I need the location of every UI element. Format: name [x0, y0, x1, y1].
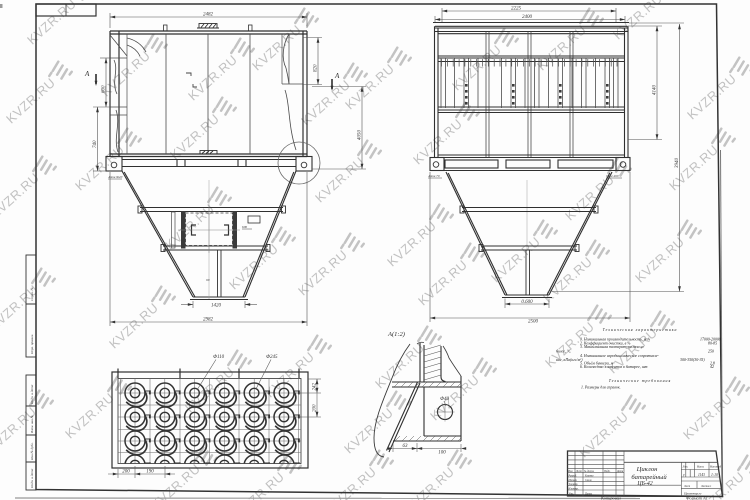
svg-text:ЦБ-42: ЦБ-42 — [636, 480, 652, 487]
svg-text:Ст2.490: Ст2.490 — [606, 174, 619, 178]
svg-text:4140: 4140 — [653, 85, 658, 96]
svg-text:Взам. инв.№: Взам. инв.№ — [30, 414, 34, 433]
svg-text:Изм: Изм — [567, 470, 573, 473]
svg-text:Ф110: Ф110 — [213, 355, 225, 360]
svg-text:200: 200 — [122, 470, 130, 475]
svg-text:Разраб.: Разраб. — [568, 474, 578, 477]
svg-text:Дата: Дата — [616, 470, 624, 473]
svg-text:A: A — [334, 72, 340, 80]
svg-text:Утв.: Утв. — [569, 493, 575, 496]
svg-text:Техническая характеристика: Техническая характеристика — [603, 328, 678, 332]
svg-text:4050: 4050 — [358, 130, 363, 141]
svg-text:2400: 2400 — [522, 15, 533, 20]
svg-text:A: A — [84, 70, 90, 78]
svg-text:Подп. и дата: Подп. и дата — [30, 468, 34, 489]
svg-text:Листов 1: Листов 1 — [700, 485, 712, 488]
svg-text:4отв Ф20: 4отв Ф20 — [108, 175, 123, 179]
svg-text:250: 250 — [708, 350, 714, 354]
svg-text:Провер.: Провер. — [568, 479, 578, 482]
svg-text:2482: 2482 — [203, 13, 214, 18]
svg-text:3940: 3940 — [675, 158, 680, 169]
svg-text:Перв. примен.: Перв. примен. — [30, 334, 34, 355]
svg-text:2225: 2225 — [511, 7, 522, 12]
svg-text:Ф40: Ф40 — [440, 397, 450, 402]
svg-text:820: 820 — [314, 64, 319, 72]
svg-text:Технические требования: Технические требования — [609, 379, 672, 383]
svg-text:А(1:2): А(1:2) — [387, 331, 405, 338]
svg-text:Ф245: Ф245 — [266, 355, 278, 360]
svg-text:Лист: Лист — [683, 485, 690, 488]
svg-text:4отв 70: 4отв 70 — [428, 174, 440, 178]
svg-text:200: 200 — [313, 404, 318, 412]
svg-text:740: 740 — [93, 140, 98, 148]
svg-text:100: 100 — [438, 451, 446, 456]
svg-text:Масса: Масса — [696, 466, 705, 469]
svg-text:1. Размеры для справок.: 1. Размеры для справок. — [581, 386, 621, 390]
svg-text:Формат А1: Формат А1 — [686, 496, 708, 500]
svg-text:1:10: 1:10 — [711, 473, 718, 477]
svg-text:Лит.: Лит. — [682, 466, 689, 469]
svg-text:Масштаб: Масштаб — [709, 466, 722, 469]
svg-text:42: 42 — [710, 365, 714, 369]
svg-text:80-85: 80-85 — [708, 342, 717, 346]
svg-text:батарейный: батарейный — [631, 474, 667, 481]
svg-text:Квитко: Квитко — [584, 474, 594, 477]
svg-text:90: 90 — [206, 278, 210, 282]
svg-text:300-350(30-35): 300-350(30-35) — [680, 358, 705, 362]
svg-text:Копировал: Копировал — [600, 496, 621, 500]
svg-text:Подп. и дата: Подп. и дата — [30, 384, 34, 405]
svg-text:600: 600 — [242, 225, 247, 229]
svg-text:63: 63 — [403, 444, 409, 449]
svg-text:0.600: 0.600 — [521, 300, 533, 305]
svg-text:600: 600 — [102, 85, 107, 93]
svg-text:2500: 2500 — [528, 320, 539, 325]
svg-text:Инв.№ дубл.: Инв.№ дубл. — [30, 442, 34, 461]
svg-text:1143: 1143 — [698, 473, 705, 477]
svg-text:Попов: Попов — [584, 493, 593, 496]
svg-text:Т.контр.: Т.контр. — [569, 483, 579, 486]
svg-text:242: 242 — [313, 383, 318, 391]
svg-text:190: 190 — [146, 470, 154, 475]
svg-text:Циклон: Циклон — [636, 466, 659, 473]
svg-text:у: у — [682, 473, 685, 477]
svg-text:№ докум.: № докум. — [583, 470, 595, 473]
svg-text:2982: 2982 — [203, 318, 214, 323]
svg-text:Подп.: Подп. — [603, 470, 611, 473]
svg-text:3. Максимальная температура: 3. Максимальная температура газа не — [580, 345, 644, 349]
svg-text:Лист: Лист — [575, 470, 582, 473]
svg-text:Н.контр.: Н.контр. — [568, 488, 579, 491]
svg-text:1420: 1420 — [211, 304, 222, 309]
svg-text:Справ. №: Справ. № — [30, 286, 34, 301]
svg-text:Салов: Салов — [585, 479, 593, 482]
svg-text:4. Номинальное аэродинамическ: 4. Номинальное аэродинамическое сопротив… — [580, 354, 660, 358]
